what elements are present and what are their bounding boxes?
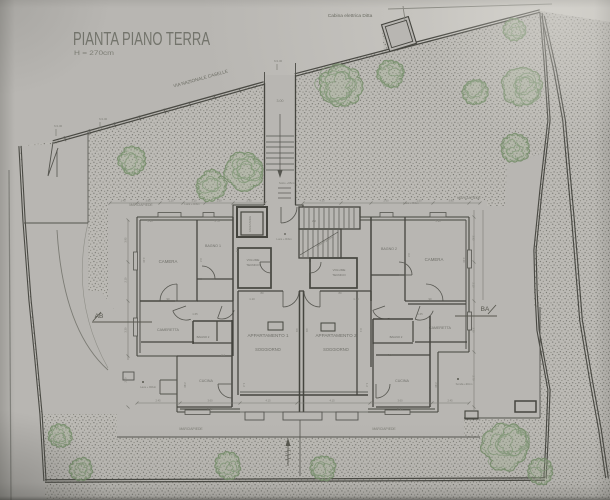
svg-text:VOLUME: VOLUME (333, 268, 346, 272)
svg-text:2.70: 2.70 (472, 375, 476, 381)
svg-text:2.95: 2.95 (397, 407, 403, 411)
svg-text:2.10: 2.10 (472, 282, 476, 288)
svg-text:2.45: 2.45 (447, 399, 453, 403)
svg-text:4.15: 4.15 (329, 399, 335, 403)
svg-text:Cabina elettrica Ditta: Cabina elettrica Ditta (328, 13, 373, 19)
svg-text:APPARTAMENTO 2: APPARTAMENTO 2 (315, 333, 356, 338)
svg-text:APPARTAMENTO 1: APPARTAMENTO 1 (247, 333, 288, 338)
svg-text:Luce + Ribm: Luce + Ribm (403, 201, 419, 205)
svg-text:1.10: 1.10 (249, 297, 255, 301)
svg-text:h=1.00: h=1.00 (274, 59, 283, 63)
svg-text:BA: BA (481, 306, 490, 313)
svg-text:4.9: 4.9 (305, 328, 309, 332)
svg-text:4.15: 4.15 (265, 399, 271, 403)
svg-text:MARCIAPIEDE: MARCIAPIEDE (129, 203, 153, 207)
svg-text:SOGGIORNO: SOGGIORNO (323, 347, 349, 352)
svg-text:3.30: 3.30 (472, 327, 476, 333)
svg-text:CUCINA: CUCINA (395, 379, 409, 383)
svg-text:2.60: 2.60 (383, 199, 389, 203)
svg-text:3.2: 3.2 (199, 258, 203, 262)
svg-text:3.85: 3.85 (448, 199, 454, 203)
svg-text:3.85: 3.85 (145, 199, 151, 203)
svg-text:BAGNO 2: BAGNO 2 (197, 335, 210, 339)
svg-text:Sonda +90cm: Sonda +90cm (456, 382, 473, 386)
svg-text:1.2: 1.2 (242, 383, 246, 387)
svg-text:2.90: 2.90 (434, 382, 438, 388)
svg-text:BAGNO 2: BAGNO 2 (381, 247, 397, 251)
svg-text:Sotto +95cm: Sotto +95cm (279, 181, 296, 185)
svg-text:SOGGIORNO: SOGGIORNO (255, 347, 281, 352)
svg-text:2.1: 2.1 (221, 353, 225, 357)
svg-text:2.1: 2.1 (388, 353, 392, 357)
svg-text:CAMERA: CAMERA (425, 257, 444, 262)
svg-text:MARCIAPIEDE: MARCIAPIEDE (457, 196, 481, 200)
svg-text:1.50: 1.50 (216, 199, 222, 203)
svg-text:3.30: 3.30 (124, 327, 128, 333)
svg-text:3.1: 3.1 (359, 328, 363, 332)
svg-text:h=1.00: h=1.00 (54, 124, 63, 128)
svg-text:3.2: 3.2 (407, 253, 411, 257)
svg-text:90: 90 (166, 297, 170, 301)
svg-text:4.9: 4.9 (295, 328, 299, 332)
svg-text:3.60: 3.60 (397, 399, 403, 403)
svg-text:TECNICO: TECNICO (332, 273, 346, 277)
svg-text:3.00: 3.00 (277, 99, 284, 103)
svg-text:CAMERA: CAMERA (159, 259, 178, 264)
svg-text:CAMERETTA: CAMERETTA (157, 328, 179, 332)
svg-text:4.30: 4.30 (319, 199, 325, 203)
svg-text:2.45: 2.45 (155, 399, 161, 403)
svg-text:1.45: 1.45 (120, 199, 126, 203)
svg-text:CAMERETTA: CAMERETTA (429, 326, 451, 330)
svg-text:2.10: 2.10 (124, 277, 128, 283)
svg-text:VOLUME: VOLUME (247, 258, 260, 262)
svg-text:BAGNO 2: BAGNO 2 (390, 335, 403, 339)
svg-text:4.10: 4.10 (142, 257, 146, 263)
svg-text:1.4: 1.4 (235, 248, 239, 252)
svg-text:1.10: 1.10 (353, 297, 359, 301)
svg-text:2.90: 2.90 (183, 382, 187, 388)
svg-text:90: 90 (428, 297, 432, 301)
svg-text:80: 80 (260, 291, 264, 295)
svg-text:3.90: 3.90 (435, 219, 441, 223)
svg-text:1.70: 1.70 (214, 219, 220, 223)
svg-text:4.10: 4.10 (462, 257, 466, 263)
svg-text:2.95: 2.95 (246, 199, 252, 203)
svg-text:Luce + Ribm: Luce + Ribm (276, 237, 292, 241)
svg-text:3.95: 3.95 (124, 237, 128, 243)
svg-text:1.65: 1.65 (417, 312, 423, 316)
svg-text:2.2: 2.2 (312, 219, 316, 223)
svg-text:3.60: 3.60 (207, 399, 213, 403)
svg-text:1.2: 1.2 (365, 383, 369, 387)
svg-text:2.95: 2.95 (207, 407, 213, 411)
svg-text:TECNICO: TECNICO (246, 263, 260, 267)
svg-text:CUCINA: CUCINA (199, 379, 213, 383)
svg-text:ASCENSORE: ASCENSORE (248, 216, 252, 233)
svg-text:BAGNO 1: BAGNO 1 (205, 244, 221, 248)
svg-text:1.20: 1.20 (168, 199, 174, 203)
svg-text:80: 80 (338, 291, 342, 295)
svg-text:Lava + Rifiuti: Lava + Rifiuti (140, 385, 156, 389)
svg-text:3.95: 3.95 (472, 235, 476, 241)
svg-text:Luce + Ribm: Luce + Ribm (184, 202, 200, 206)
svg-text:3.90: 3.90 (147, 219, 153, 223)
svg-text:1.65: 1.65 (192, 312, 198, 316)
